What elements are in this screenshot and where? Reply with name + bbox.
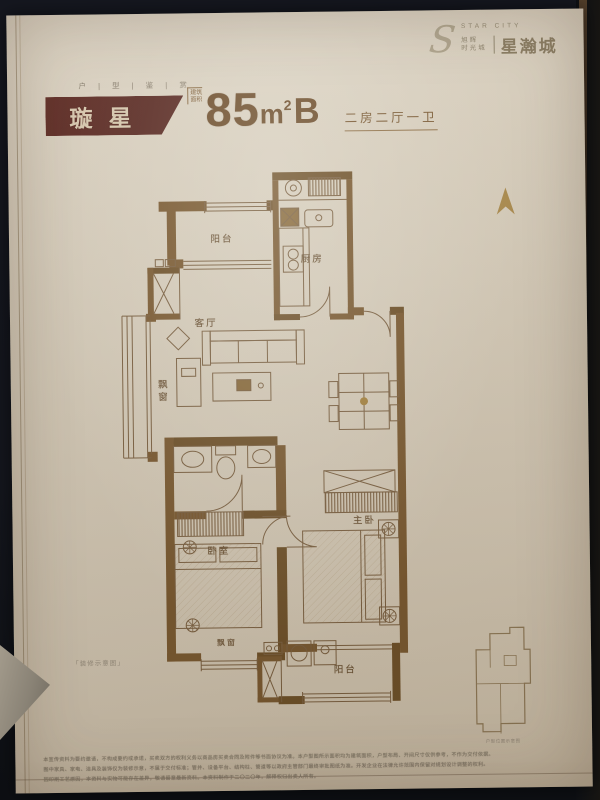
area-group: 建筑 面积 85 m 2 B <box>187 86 320 131</box>
logo-brand-line2: 时光城 <box>461 45 487 53</box>
duct-shaft-bottom <box>262 656 282 702</box>
entry-door <box>364 311 390 337</box>
unit-name: 璇星 <box>45 98 147 133</box>
area-value: 85 <box>205 89 260 130</box>
kitchen-appliances <box>278 177 346 200</box>
eyebrow-text: 户 | 型 | 鉴 | 赏 <box>65 79 205 92</box>
logo-divider <box>494 36 495 54</box>
coffee-table <box>213 372 271 401</box>
logo-s-icon: S <box>427 22 457 58</box>
disclaimer: 本宣传资料为要约邀请，不构成要约或承诺，买卖双方的权利义务以商品房买卖合同及附件… <box>43 749 561 785</box>
dining-table <box>329 373 400 430</box>
bay-window-left <box>122 316 152 458</box>
bathroom-door <box>206 475 242 511</box>
area-label-line2: 面积 <box>190 97 202 104</box>
window-balcony-bottom <box>303 691 391 704</box>
wardrobe-bedroom <box>177 512 243 537</box>
logo-star-city: STAR CITY <box>461 21 558 29</box>
room-spec: 二房二厅一卫 <box>344 106 437 131</box>
logo-row: 旭辉 时光城 星瀚城 <box>461 31 558 57</box>
logo-text-block: STAR CITY 旭辉 时光城 星瀚城 <box>461 21 558 57</box>
poster: S STAR CITY 旭辉 时光城 星瀚城 户 | 型 | 鉴 | 赏 璇星 … <box>6 9 592 794</box>
unit-name-flag: 璇星 <box>45 95 183 136</box>
logo-brand-lines: 旭辉 时光城 <box>461 37 487 53</box>
sofa <box>202 330 304 365</box>
armchair <box>167 327 190 350</box>
area-superscript: 2 <box>284 97 292 113</box>
brand-logo: S STAR CITY 旭辉 时光城 星瀚城 <box>430 21 558 59</box>
bay-window-bottom <box>201 659 257 672</box>
window-balcony-top <box>205 200 271 213</box>
area-label: 建筑 面积 <box>187 87 202 104</box>
project-name: 星瀚城 <box>501 31 558 57</box>
plant-icon <box>382 522 395 535</box>
kitchen-counter <box>279 208 334 307</box>
bathroom-fixtures <box>174 445 276 479</box>
slider-balcony-living <box>183 260 271 269</box>
plant-icon <box>383 609 396 622</box>
unit-type-letter: B <box>293 93 319 129</box>
photo-of-floorplan-poster: S STAR CITY 旭辉 时光城 星瀚城 户 | 型 | 鉴 | 赏 璇星 … <box>0 0 600 800</box>
wardrobe-master <box>324 470 398 513</box>
bed-bedroom <box>175 543 262 628</box>
tv-cabinet <box>176 358 201 406</box>
area-unit: m <box>260 99 284 129</box>
keyplan-diagram <box>476 627 531 734</box>
north-arrow-icon <box>496 187 514 214</box>
bed-master <box>303 530 386 623</box>
